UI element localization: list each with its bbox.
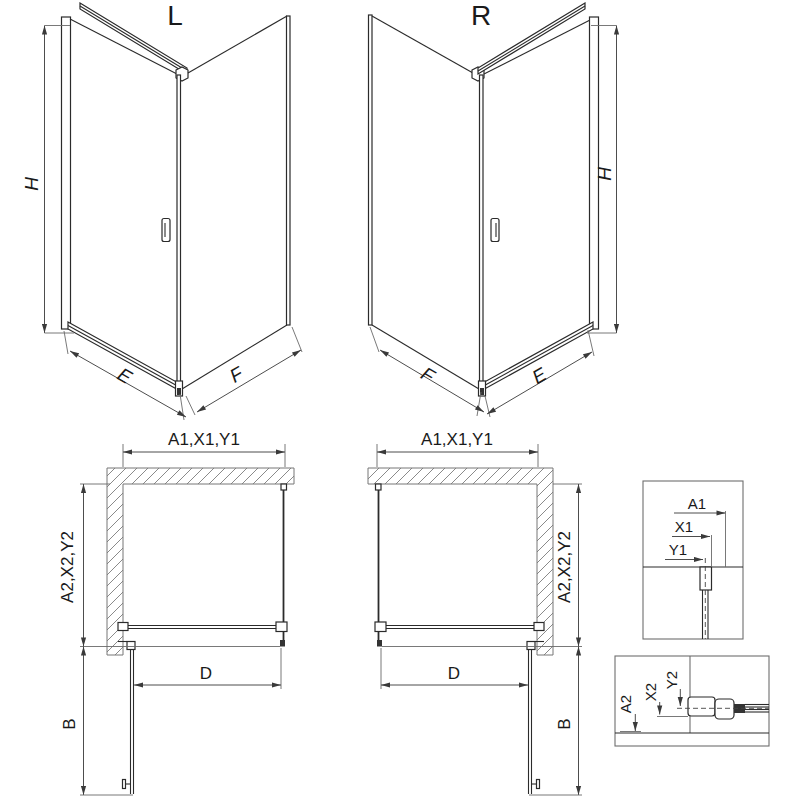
iso-left-title: L [167, 0, 183, 31]
plan-right-dim-depth: A2,X2,Y2 [553, 484, 582, 647]
dim-label-E-right: E [529, 363, 551, 388]
plan-right-dim-opening: D [381, 648, 528, 689]
drawing-canvas: L [0, 0, 800, 800]
dim-label-Y2-detail: Y2 [663, 671, 680, 689]
open-door-handle-right-plan [537, 780, 540, 789]
iso-left-structure [62, 3, 291, 396]
dim-label-F-left: F [226, 362, 248, 387]
dim-label-H-left: H [21, 177, 42, 191]
shower-enclosure-technical-drawing: L [0, 0, 800, 800]
dim-label-B-left-plan: B [60, 718, 79, 729]
dim-label-E-left: E [114, 363, 136, 388]
door-handle-right [491, 219, 499, 242]
plan-left-dim-depth: A2,X2,Y2 [58, 484, 110, 647]
dim-label-A1X1Y1-right-plan: A1,X1,Y1 [421, 430, 493, 449]
detail-dim-A2: A2 [617, 695, 641, 732]
dim-label-H-right: H [594, 167, 615, 181]
plan-view-right: A1,X1,Y1 A2,X2,Y2 [368, 430, 582, 795]
iso-view-right: R [369, 0, 617, 417]
wall-hatched-right-plan [368, 468, 553, 655]
dim-label-X1-detail: X1 [675, 518, 693, 535]
iso-right-dim-side: F [370, 327, 484, 416]
iso-left-dim-side: F [186, 327, 302, 415]
wall-hatched-left-plan [107, 468, 294, 655]
plan-left-dim-opening: D [134, 648, 281, 689]
detail-dim-Y1: Y1 [665, 541, 703, 560]
detail-dim-Y2: Y2 [663, 671, 680, 706]
plan-left-dim-door-swing: B [60, 647, 133, 796]
iso-right-title: R [471, 0, 491, 31]
plan-view-left: A1,X1,Y1 A2,X2,Y2 [58, 430, 294, 795]
plan-right-dim-door-swing: B [529, 647, 582, 796]
dim-label-B-right-plan: B [555, 718, 574, 729]
dim-label-X2-detail: X2 [642, 683, 659, 701]
open-door-handle-left-plan [123, 780, 126, 789]
dim-label-A2-detail: A2 [617, 695, 634, 713]
dim-label-A2X2Y2-left-plan: A2,X2,Y2 [58, 531, 77, 603]
dim-label-A1X1Y1-left-plan: A1,X1,Y1 [168, 430, 240, 449]
detail-view-width-refs: A1 X1 Y1 [643, 481, 743, 639]
plan-left-dim-width: A1,X1,Y1 [123, 430, 285, 467]
dim-label-Y1-detail: Y1 [669, 541, 687, 558]
iso-view-left: L [21, 0, 302, 420]
detail-view-depth-refs: Y2 X2 A2 [615, 656, 769, 746]
dim-label-A1-detail: A1 [688, 495, 706, 512]
plan-right-dim-width: A1,X1,Y1 [377, 430, 538, 467]
dim-label-A2X2Y2-right-plan: A2,X2,Y2 [555, 531, 574, 603]
dim-label-D-right-plan: D [448, 664, 460, 683]
door-handle-left [162, 219, 170, 242]
dim-label-D-left-plan: D [200, 664, 212, 683]
iso-left-dim-front: E [64, 331, 186, 420]
iso-right-structure [369, 3, 599, 396]
